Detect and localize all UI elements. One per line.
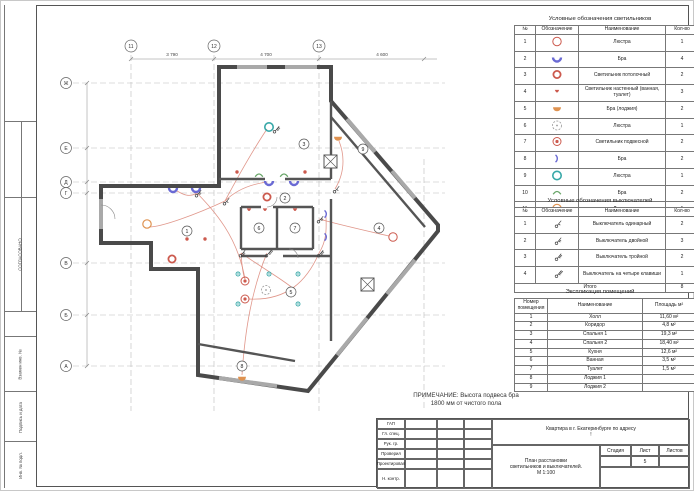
room-row: 1Холл11,60 м²	[515, 313, 694, 322]
explication-table: Номер помещенияНаименованиеПлощадь м²1Хо…	[514, 298, 694, 392]
signature-blank	[437, 419, 464, 429]
column-header: Наименование	[579, 208, 666, 217]
signature-label: Гл. спец.	[377, 429, 405, 439]
room-row: 8Лоджия 1	[515, 374, 694, 383]
wiring-line	[241, 253, 295, 290]
signature-blank	[464, 439, 492, 449]
circle-red-thick-icon	[168, 255, 175, 262]
column-header: Площадь м²	[643, 299, 694, 314]
grid-bubble: Ж	[61, 78, 72, 89]
dot-teal-icon	[267, 272, 271, 276]
signature-blank	[437, 459, 464, 469]
signature-blank	[464, 429, 492, 439]
signature-blank	[464, 469, 492, 489]
doc-title-line3: М 1:100	[537, 470, 555, 476]
dot-red-icon	[203, 237, 206, 240]
signature-blank	[437, 439, 464, 449]
room-row: 4Спальня 218,40 м²	[515, 339, 694, 348]
column-header: Наименование	[579, 26, 666, 35]
strip-line	[4, 121, 36, 122]
note: ПРИМЕЧАНИЕ: Высота подвеса бра 1800 мм о…	[371, 392, 561, 408]
signature-blank	[405, 449, 437, 459]
circle-dashed-icon	[262, 286, 271, 295]
side-strip-cell: Взамен инв. №	[4, 336, 36, 392]
svg-text:9: 9	[362, 147, 365, 153]
column-header: №	[515, 26, 536, 35]
room-number: 3	[299, 139, 309, 149]
arc-green-icon	[546, 187, 568, 198]
signature-label: Проектировал	[377, 459, 405, 469]
wiring-line	[197, 193, 245, 279]
half-orange-icon	[334, 137, 342, 141]
dot-red-icon	[235, 170, 238, 173]
sheet-label: Лист	[631, 445, 659, 456]
half-orange-icon	[546, 103, 568, 114]
wiring-line	[249, 253, 319, 299]
wall-red-small-icon	[293, 208, 297, 211]
signature-blank	[437, 469, 464, 489]
room-row: 3Спальня 119,3 м²	[515, 331, 694, 340]
bra-blue-icon	[290, 181, 298, 185]
svg-text:13: 13	[316, 44, 322, 50]
wiring-line	[225, 182, 267, 201]
header-row: №ОбозначениеНаименованиеКол-во	[515, 208, 694, 217]
signature-label: Рук. гр.	[377, 439, 405, 449]
header-row: Номер помещенияНаименованиеПлощадь м²	[515, 299, 694, 314]
room-number: 5	[286, 287, 296, 297]
grid-bubble: Д	[61, 177, 72, 188]
switch-3-icon	[546, 251, 568, 262]
legend-row: 3Светильник потолочный2	[515, 68, 694, 85]
grid-bubble: В	[61, 258, 72, 269]
signature-blank	[464, 419, 492, 429]
room-number: 7	[290, 223, 300, 233]
svg-text:5: 5	[290, 290, 293, 296]
circle-teal-icon	[546, 170, 568, 181]
circle-red-thick-icon	[546, 69, 568, 80]
wiring-line	[149, 201, 225, 227]
stage-label: Стадия	[600, 445, 631, 456]
stage-value	[600, 456, 631, 467]
column-header: Обозначение	[536, 26, 579, 35]
legend-row: 2Бра4	[515, 51, 694, 68]
project-line2: !	[590, 432, 591, 438]
svg-text:1: 1	[186, 229, 189, 235]
dot-teal-icon	[236, 272, 240, 276]
svg-text:6: 6	[258, 226, 261, 232]
agreed-stamp: СОГЛАСОВАНО	[4, 197, 36, 311]
legend-row: 2Выключатель двойной3	[515, 233, 694, 250]
svg-text:12: 12	[211, 44, 217, 50]
dot-teal-icon	[236, 302, 240, 306]
circle-dashed-icon	[546, 120, 568, 131]
floor-plan: 3 7904 7004 600111213ЖЕДГВБА123456789	[37, 9, 487, 439]
project-name-cell: Квартира в г. Екатеринбурге по адресу !	[492, 419, 690, 445]
arc-green-icon	[280, 174, 288, 177]
room-number: 4	[374, 223, 384, 233]
bra-blue-icon	[192, 188, 200, 192]
wall-red-small-icon	[247, 208, 251, 211]
svg-text:Ж: Ж	[64, 81, 69, 87]
column-header: №	[515, 208, 536, 217]
grid-bubble: 12	[208, 40, 220, 52]
grid-bubble: 13	[313, 40, 325, 52]
doc-title-cell: План расстановки светильников и выключат…	[492, 445, 600, 489]
switches-legend-title: Условные обозначения выключателей	[514, 198, 686, 204]
grid-bubble: 11	[125, 40, 137, 52]
room-number: 8	[237, 361, 247, 371]
svg-text:11: 11	[128, 44, 133, 50]
wall-red-small-icon	[263, 208, 267, 211]
svg-text:7: 7	[294, 226, 297, 232]
strip-line	[4, 311, 36, 312]
legend-row: 4Выключатель на четыре клавиши1	[515, 267, 694, 284]
room-number: 6	[254, 223, 264, 233]
title-block: ГАПГл. спец.Рук. гр.ПроверилПроектировал…	[376, 418, 689, 488]
arc-green-icon	[255, 174, 263, 177]
window	[337, 318, 367, 355]
legend-row: 1Выключатель одинарный2	[515, 216, 694, 233]
switch-3-icon	[273, 126, 280, 133]
bra-blue-icon	[546, 53, 568, 64]
column-header: Кол-во	[666, 26, 694, 35]
dot-teal-icon	[296, 302, 300, 306]
explication-title: Экспликация помещений	[514, 289, 686, 295]
room-row: 5Кухня12,6 м²	[515, 348, 694, 357]
lights-legend-title: Условные обозначения светильников	[514, 16, 686, 22]
svg-text:2: 2	[284, 196, 287, 202]
dot-teal-icon	[296, 272, 300, 276]
column-header: Наименование	[548, 299, 643, 314]
room-number: 1	[182, 226, 192, 236]
circle-red-outline-icon	[546, 36, 568, 47]
bra-blue-icon	[265, 181, 273, 185]
column-header: Номер помещения	[515, 299, 548, 314]
room-number: 9	[358, 144, 368, 154]
signature-blank	[405, 469, 437, 489]
circle-red-dot-icon	[546, 136, 568, 147]
dimension-label: 3 790	[166, 52, 178, 57]
circle-red-thick-icon	[263, 193, 270, 200]
interior-wall	[198, 344, 295, 361]
signature-blank	[405, 459, 437, 469]
arc-blue-icon	[325, 210, 327, 217]
wiring-line	[225, 129, 267, 201]
signature-blank	[405, 419, 437, 429]
dot-red-icon	[185, 237, 188, 240]
side-strip-cell: Инв. № подл.	[4, 441, 36, 489]
legend-row: 7Светильник подвесной2	[515, 135, 694, 152]
circle-teal-icon	[265, 123, 273, 131]
switches-legend-table: №ОбозначениеНаименованиеКол-во1Выключате…	[514, 207, 694, 293]
signature-blank	[464, 449, 492, 459]
room-row: 9Лоджия 2	[515, 383, 694, 392]
svg-text:Г: Г	[65, 191, 68, 197]
interior-wall	[331, 117, 425, 227]
grid-bubble: Б	[61, 310, 72, 321]
room-number: 2	[280, 193, 290, 203]
note-line2: 1800 мм от чистого пола	[371, 400, 561, 408]
window	[387, 260, 415, 294]
signature-label: Проверил	[377, 449, 405, 459]
outer-walls	[101, 67, 438, 391]
legend-row: 3Выключатель тройной2	[515, 250, 694, 267]
org-cell	[600, 467, 690, 489]
column-header: Обозначение	[536, 208, 579, 217]
grid-bubble: Г	[61, 188, 72, 199]
room-row: 2Коридор4,8 м²	[515, 322, 694, 331]
door-arc	[267, 197, 277, 207]
signature-label: ГАП	[377, 419, 405, 429]
header-row: №ОбозначениеНаименованиеКол-во	[515, 26, 694, 35]
signature-blank	[464, 459, 492, 469]
grid-bubble: Е	[61, 143, 72, 154]
dimension-label: 4 600	[376, 52, 388, 57]
signature-blank	[405, 429, 437, 439]
window	[219, 378, 277, 386]
svg-text:3: 3	[303, 142, 306, 148]
legend-row: 9Люстра1	[515, 168, 694, 185]
legend-row: 6Люстра1	[515, 118, 694, 135]
column-header: Кол-во	[666, 208, 694, 217]
room-row: 6Ванная3,5 м²	[515, 357, 694, 366]
switch-2-icon	[546, 235, 568, 246]
note-line1: ПРИМЕЧАНИЕ: Высота подвеса бра	[371, 392, 561, 400]
circle-red-outline-icon	[389, 233, 397, 241]
side-strip-cell: Подпись и дата	[4, 391, 36, 442]
door-arc	[101, 205, 115, 219]
arc-blue-icon	[325, 233, 327, 240]
grid-bubble: А	[61, 361, 72, 372]
drawing-sheet: СОГЛАСОВАНО Взамен инв. №Подпись и датаИ…	[0, 0, 694, 491]
signature-blank	[437, 429, 464, 439]
signature-blank	[405, 439, 437, 449]
sheets-label: Листов	[659, 445, 690, 456]
arc-blue-icon	[546, 153, 568, 164]
sheet-number: 5	[631, 456, 659, 467]
legend-row: 5Бра (лоджия)2	[515, 101, 694, 118]
legend-row: 1Люстра1	[515, 34, 694, 51]
circle-orange-icon	[143, 220, 151, 228]
legend-row: 4Светильник настенный (ванная, туалет)3	[515, 85, 694, 102]
signature-label: Н. контр.	[377, 469, 405, 489]
wiring-line	[242, 253, 267, 375]
bra-blue-icon	[169, 188, 177, 192]
legend-row: 8Бра2	[515, 152, 694, 169]
wall-red-small-icon	[546, 86, 568, 97]
svg-text:4: 4	[378, 226, 381, 232]
sheets-value	[659, 456, 690, 467]
dimension-label: 4 700	[260, 52, 272, 57]
room-row: 7Туалет1,5 м²	[515, 366, 694, 375]
switch-4-icon	[546, 268, 568, 279]
switch-1-icon	[546, 218, 568, 229]
svg-text:8: 8	[241, 364, 244, 370]
dot-red-icon	[303, 170, 306, 173]
circle-red-dot-icon	[241, 295, 249, 303]
signature-blank	[437, 449, 464, 459]
